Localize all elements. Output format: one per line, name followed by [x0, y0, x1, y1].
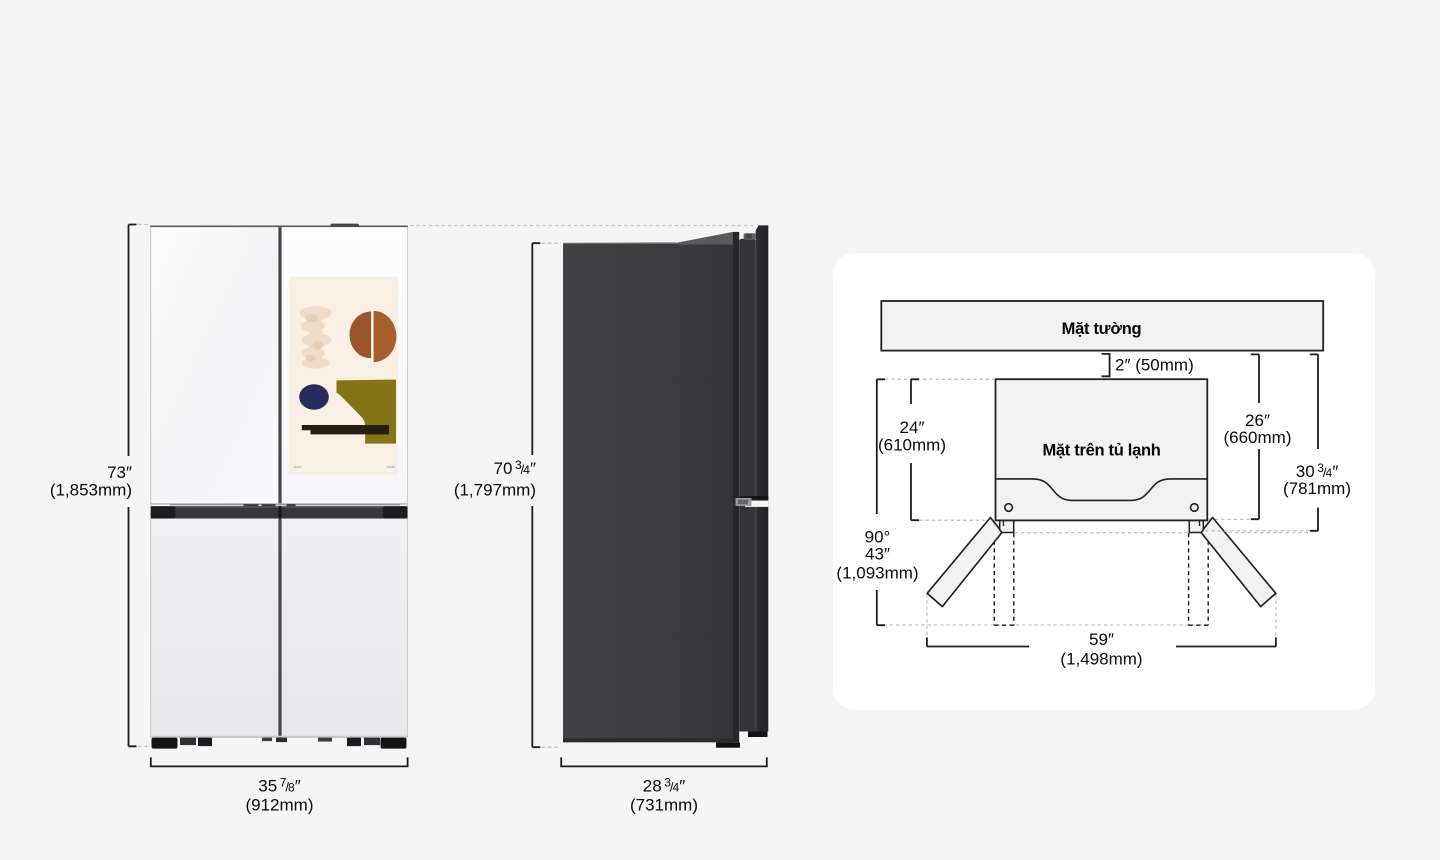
- svg-text:43″: 43″: [865, 545, 890, 564]
- svg-text:(610mm): (610mm): [878, 436, 946, 455]
- svg-text:(1,797mm): (1,797mm): [454, 481, 536, 500]
- svg-text:26″: 26″: [1245, 411, 1270, 430]
- svg-text:(1,853mm): (1,853mm): [50, 481, 132, 500]
- svg-text:(660mm): (660mm): [1223, 428, 1291, 447]
- svg-text:90°: 90°: [865, 527, 891, 546]
- svg-text:Mặt trên tủ lạnh: Mặt trên tủ lạnh: [1042, 442, 1160, 460]
- svg-text:(1,093mm): (1,093mm): [836, 563, 918, 582]
- svg-text:Mặt tường: Mặt tường: [1062, 320, 1142, 338]
- svg-text:(781mm): (781mm): [1283, 479, 1351, 498]
- svg-text:(731mm): (731mm): [630, 796, 698, 815]
- svg-text:(1,498mm): (1,498mm): [1060, 649, 1142, 668]
- svg-text:59″: 59″: [1089, 630, 1114, 649]
- svg-text:73″: 73″: [107, 463, 132, 482]
- svg-text:(912mm): (912mm): [245, 796, 313, 815]
- svg-text:2″ (50mm): 2″ (50mm): [1115, 356, 1194, 375]
- svg-text:24″: 24″: [900, 418, 925, 437]
